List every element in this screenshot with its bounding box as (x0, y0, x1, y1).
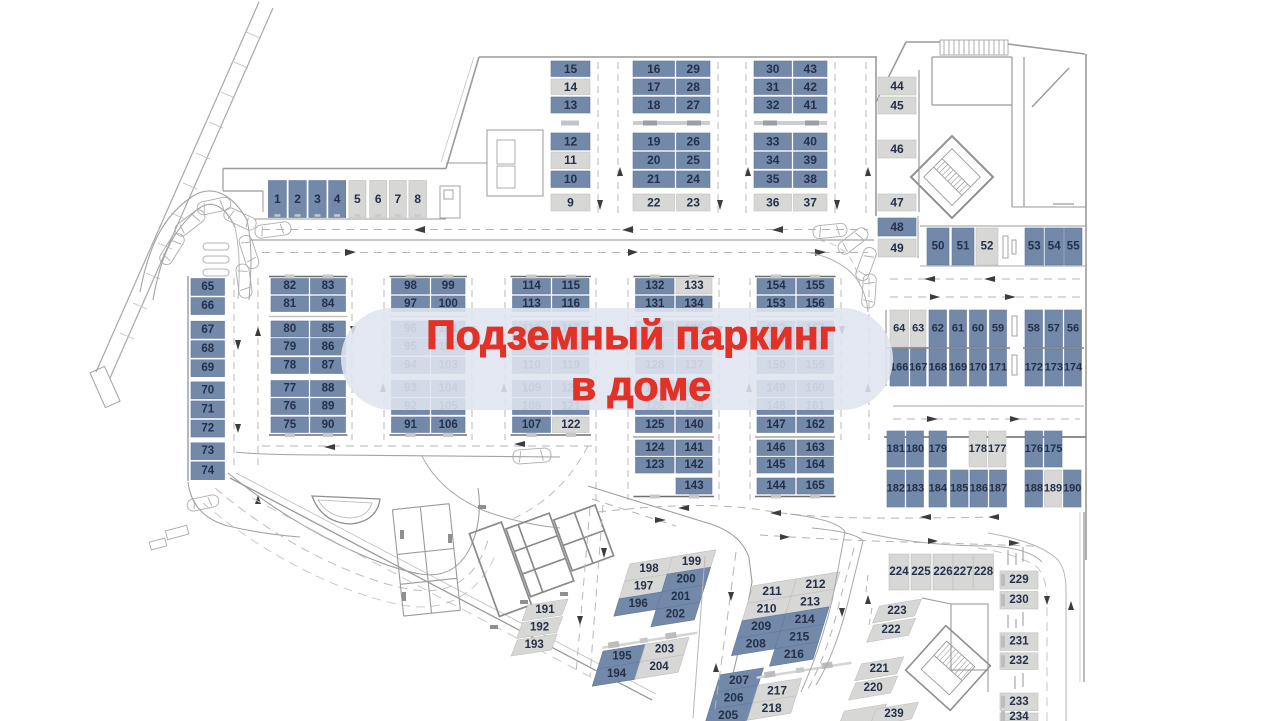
svg-text:142: 142 (684, 459, 703, 471)
svg-text:1: 1 (274, 192, 281, 206)
svg-text:11: 11 (564, 153, 577, 167)
svg-text:233: 233 (1009, 696, 1028, 708)
svg-text:88: 88 (322, 383, 335, 395)
svg-text:89: 89 (322, 401, 335, 413)
svg-text:9: 9 (567, 196, 574, 210)
svg-text:199: 199 (682, 556, 701, 568)
svg-text:19: 19 (647, 135, 661, 149)
svg-text:190: 190 (1063, 483, 1081, 495)
svg-text:209: 209 (751, 619, 771, 633)
svg-text:172: 172 (1025, 362, 1043, 374)
svg-text:146: 146 (766, 442, 785, 454)
svg-text:195: 195 (612, 651, 632, 663)
svg-text:42: 42 (804, 80, 818, 94)
svg-text:39: 39 (804, 153, 818, 167)
svg-text:Подземный паркинг: Подземный паркинг (426, 312, 835, 358)
svg-text:34: 34 (766, 153, 780, 167)
svg-text:165: 165 (806, 480, 826, 492)
svg-text:180: 180 (906, 443, 924, 455)
svg-text:175: 175 (1044, 443, 1062, 455)
svg-text:13: 13 (564, 98, 578, 112)
svg-text:179: 179 (929, 443, 947, 455)
svg-text:145: 145 (766, 459, 786, 471)
svg-text:59: 59 (992, 323, 1004, 335)
svg-text:31: 31 (766, 80, 780, 94)
svg-text:69: 69 (201, 362, 214, 374)
svg-text:228: 228 (974, 566, 994, 578)
svg-text:230: 230 (1009, 594, 1028, 606)
svg-text:52: 52 (981, 241, 994, 253)
svg-text:65: 65 (201, 281, 214, 293)
svg-text:36: 36 (766, 196, 780, 210)
svg-text:196: 196 (629, 598, 648, 610)
svg-text:164: 164 (806, 459, 826, 471)
svg-text:231: 231 (1009, 636, 1029, 648)
svg-text:217: 217 (767, 684, 787, 698)
svg-text:28: 28 (687, 80, 701, 94)
svg-text:140: 140 (684, 419, 703, 431)
svg-text:62: 62 (932, 323, 944, 335)
svg-text:3: 3 (314, 192, 321, 206)
svg-text:64: 64 (893, 323, 906, 335)
svg-text:81: 81 (283, 298, 296, 310)
svg-text:24: 24 (687, 172, 701, 186)
svg-text:106: 106 (439, 419, 458, 431)
svg-text:227: 227 (953, 566, 972, 578)
svg-text:216: 216 (784, 647, 804, 661)
svg-text:32: 32 (766, 98, 780, 112)
svg-text:48: 48 (890, 220, 904, 234)
svg-text:183: 183 (906, 483, 924, 495)
svg-text:66: 66 (201, 300, 214, 312)
svg-text:192: 192 (530, 622, 549, 634)
svg-text:84: 84 (322, 298, 335, 310)
svg-text:107: 107 (522, 419, 541, 431)
svg-text:63: 63 (912, 323, 924, 335)
svg-text:85: 85 (322, 323, 335, 335)
svg-text:54: 54 (1048, 241, 1061, 253)
svg-text:206: 206 (724, 691, 744, 705)
svg-text:182: 182 (887, 483, 905, 495)
svg-text:82: 82 (283, 280, 296, 292)
svg-text:67: 67 (201, 324, 214, 336)
svg-text:58: 58 (1028, 323, 1040, 335)
svg-text:114: 114 (522, 280, 541, 292)
svg-text:229: 229 (1009, 574, 1028, 586)
svg-text:167: 167 (909, 362, 927, 374)
svg-text:77: 77 (283, 383, 296, 395)
svg-text:213: 213 (800, 595, 820, 609)
svg-text:188: 188 (1025, 483, 1043, 495)
svg-text:207: 207 (729, 673, 749, 687)
svg-text:198: 198 (639, 563, 659, 575)
svg-text:147: 147 (766, 419, 785, 431)
svg-text:174: 174 (1064, 362, 1083, 374)
svg-text:75: 75 (283, 419, 296, 431)
svg-text:132: 132 (645, 280, 664, 292)
svg-text:29: 29 (687, 62, 701, 76)
svg-text:168: 168 (929, 362, 947, 374)
svg-text:125: 125 (645, 419, 665, 431)
svg-text:43: 43 (804, 62, 818, 76)
svg-text:90: 90 (322, 419, 335, 431)
svg-text:53: 53 (1028, 241, 1041, 253)
svg-text:225: 225 (911, 566, 931, 578)
svg-text:10: 10 (564, 172, 578, 186)
svg-text:218: 218 (762, 701, 782, 715)
svg-text:184: 184 (929, 483, 948, 495)
svg-text:70: 70 (201, 384, 214, 396)
svg-text:45: 45 (890, 99, 904, 113)
svg-text:124: 124 (645, 442, 665, 454)
svg-text:26: 26 (687, 135, 701, 149)
svg-text:191: 191 (535, 604, 555, 616)
svg-text:185: 185 (950, 483, 968, 495)
svg-text:50: 50 (932, 241, 945, 253)
svg-text:143: 143 (684, 480, 703, 492)
svg-text:193: 193 (525, 639, 544, 651)
svg-text:72: 72 (201, 423, 214, 435)
svg-text:49: 49 (890, 241, 904, 255)
svg-text:202: 202 (666, 609, 685, 621)
svg-text:220: 220 (864, 682, 883, 694)
svg-text:16: 16 (647, 62, 661, 76)
svg-text:21: 21 (647, 172, 661, 186)
svg-text:170: 170 (969, 362, 987, 374)
svg-text:61: 61 (952, 323, 964, 335)
svg-text:141: 141 (684, 442, 704, 454)
svg-text:189: 189 (1044, 483, 1062, 495)
svg-text:35: 35 (766, 172, 780, 186)
svg-text:12: 12 (564, 135, 578, 149)
svg-text:133: 133 (684, 280, 703, 292)
svg-text:2: 2 (294, 192, 301, 206)
svg-text:30: 30 (766, 62, 780, 76)
svg-text:173: 173 (1045, 362, 1063, 374)
svg-text:212: 212 (805, 577, 825, 591)
svg-text:210: 210 (757, 602, 777, 616)
svg-text:171: 171 (989, 362, 1007, 374)
svg-text:55: 55 (1067, 241, 1080, 253)
svg-text:7: 7 (394, 192, 401, 206)
svg-text:18: 18 (647, 98, 661, 112)
svg-text:197: 197 (634, 581, 653, 593)
svg-text:25: 25 (687, 153, 701, 167)
svg-text:115: 115 (562, 280, 581, 292)
svg-text:57: 57 (1048, 323, 1060, 335)
svg-text:91: 91 (404, 419, 417, 431)
svg-text:17: 17 (647, 80, 661, 94)
svg-text:215: 215 (789, 630, 809, 644)
svg-text:239: 239 (884, 708, 903, 720)
svg-text:99: 99 (442, 280, 455, 292)
svg-text:6: 6 (375, 192, 382, 206)
svg-text:27: 27 (687, 98, 701, 112)
svg-text:15: 15 (564, 62, 578, 76)
svg-text:211: 211 (762, 584, 782, 598)
svg-text:56: 56 (1067, 323, 1079, 335)
svg-text:154: 154 (766, 280, 786, 292)
svg-text:194: 194 (607, 668, 627, 680)
svg-text:23: 23 (687, 196, 701, 210)
svg-text:232: 232 (1009, 655, 1028, 667)
svg-text:162: 162 (806, 419, 825, 431)
svg-text:22: 22 (647, 196, 661, 210)
svg-text:20: 20 (647, 153, 661, 167)
svg-text:181: 181 (887, 443, 905, 455)
svg-text:187: 187 (989, 483, 1007, 495)
svg-text:5: 5 (354, 192, 361, 206)
svg-text:186: 186 (970, 483, 988, 495)
svg-text:71: 71 (201, 403, 214, 415)
svg-text:223: 223 (887, 605, 906, 617)
svg-text:40: 40 (804, 135, 818, 149)
svg-text:4: 4 (334, 192, 341, 206)
svg-text:46: 46 (890, 142, 904, 156)
svg-text:33: 33 (766, 135, 780, 149)
svg-text:51: 51 (957, 241, 970, 253)
svg-text:204: 204 (650, 661, 670, 673)
svg-text:177: 177 (988, 443, 1006, 455)
svg-text:169: 169 (949, 362, 967, 374)
svg-text:226: 226 (933, 566, 952, 578)
svg-text:60: 60 (972, 323, 984, 335)
svg-text:122: 122 (561, 419, 580, 431)
svg-text:38: 38 (804, 172, 818, 186)
svg-text:83: 83 (322, 280, 335, 292)
svg-text:80: 80 (283, 323, 296, 335)
svg-text:200: 200 (677, 574, 696, 586)
svg-text:123: 123 (645, 459, 664, 471)
svg-text:86: 86 (322, 341, 335, 353)
svg-text:78: 78 (283, 360, 296, 372)
svg-text:14: 14 (564, 80, 578, 94)
svg-text:222: 222 (882, 624, 901, 636)
svg-text:37: 37 (804, 196, 818, 210)
svg-text:203: 203 (655, 644, 674, 656)
svg-text:73: 73 (201, 445, 214, 457)
svg-text:163: 163 (806, 442, 825, 454)
svg-text:87: 87 (322, 360, 335, 372)
svg-text:144: 144 (766, 480, 786, 492)
svg-text:208: 208 (746, 637, 766, 651)
svg-text:234: 234 (1009, 711, 1029, 721)
svg-text:221: 221 (870, 663, 890, 675)
svg-text:68: 68 (201, 343, 214, 355)
svg-text:76: 76 (283, 401, 296, 413)
svg-text:176: 176 (1025, 443, 1043, 455)
svg-text:47: 47 (890, 196, 904, 210)
svg-text:74: 74 (201, 465, 214, 477)
svg-text:79: 79 (283, 341, 296, 353)
svg-text:155: 155 (806, 280, 826, 292)
svg-text:98: 98 (404, 280, 417, 292)
svg-text:8: 8 (414, 192, 421, 206)
svg-text:41: 41 (804, 98, 818, 112)
svg-text:201: 201 (671, 591, 691, 603)
svg-text:214: 214 (795, 612, 815, 626)
svg-text:205: 205 (718, 708, 738, 721)
svg-text:44: 44 (890, 79, 904, 93)
svg-text:178: 178 (969, 443, 987, 455)
svg-text:в доме: в доме (571, 363, 711, 409)
svg-text:224: 224 (889, 566, 909, 578)
